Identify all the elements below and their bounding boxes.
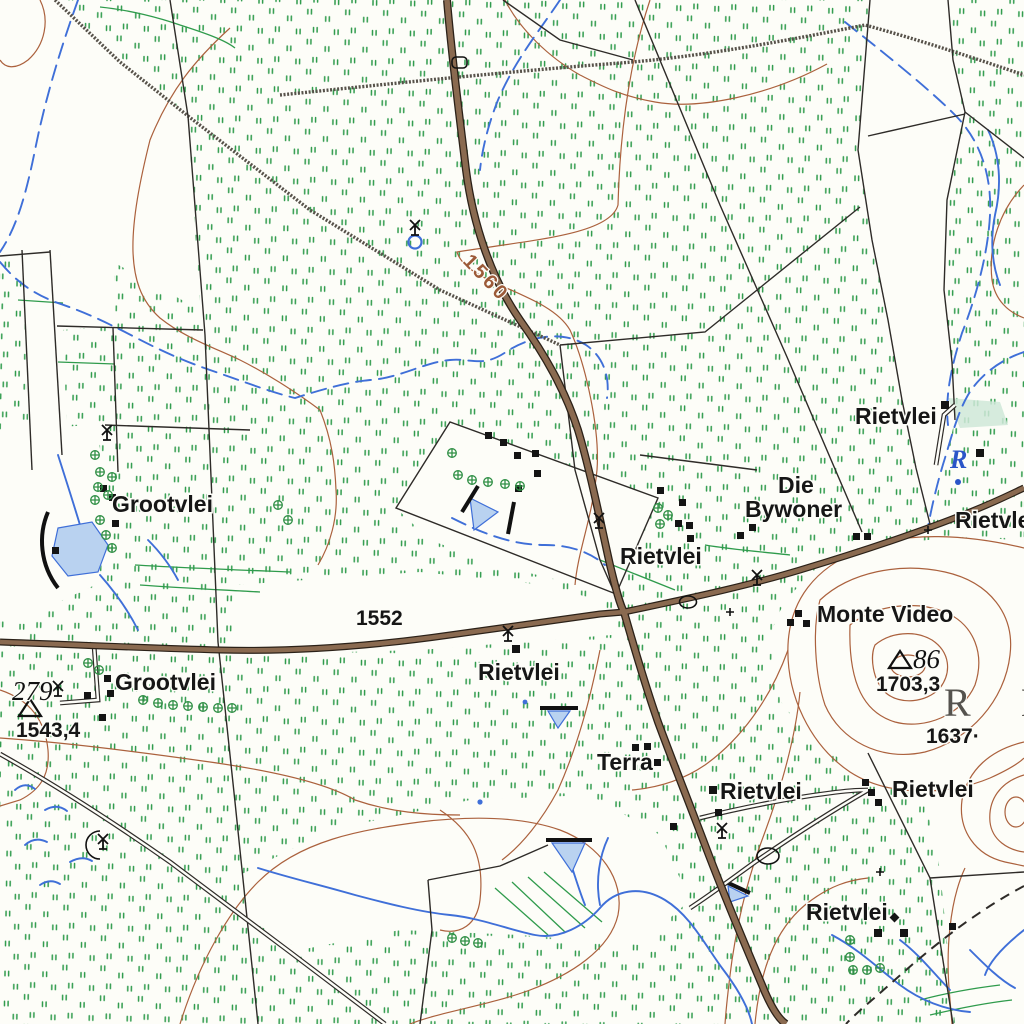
label-rietvlei-east-edge: Rietvlei	[955, 507, 1024, 533]
label-rietvlei-west-of-junction: Rietvlei	[620, 543, 702, 569]
label-rietvlei-bottom: Rietvlei	[806, 899, 888, 925]
label-rietvlei-upper: Rietvlei	[855, 403, 937, 429]
label-grootvlei-north: Grootvlei	[112, 491, 213, 517]
strip-number-1552: 1552	[356, 607, 403, 630]
topographic-map: Grootvlei Grootvlei Rietvlei Rietvlei Ri…	[0, 0, 1024, 1024]
spring-dot	[955, 479, 961, 485]
label-region-letters: R I	[944, 680, 1024, 725]
label-die-bywoner-line1: Die	[778, 472, 814, 498]
label-rietvlei-center-south: Rietvlei	[720, 778, 802, 804]
trig-elevation-west: 1543,4	[16, 719, 81, 742]
map-canvas[interactable]: Grootvlei Grootvlei Rietvlei Rietvlei Ri…	[0, 0, 1024, 1024]
trig-number-monte-video: 86	[913, 644, 941, 674]
trig-elevation-monte-video: 1703,3	[876, 673, 940, 696]
label-die-bywoner-line2: Bywoner	[745, 496, 842, 522]
trig-number-west: 279	[12, 676, 53, 706]
label-terra: Terra	[597, 749, 653, 775]
spot-height-1637: 1637·	[926, 725, 980, 748]
label-grootvlei-south: Grootvlei	[115, 669, 216, 695]
label-rietvlei-south-of-road: Rietvlei	[478, 659, 560, 685]
label-monte-video: Monte Video	[817, 601, 953, 627]
label-rietvlei-southeast: Rietvlei	[892, 776, 974, 802]
label-river-initial: R	[949, 445, 967, 474]
